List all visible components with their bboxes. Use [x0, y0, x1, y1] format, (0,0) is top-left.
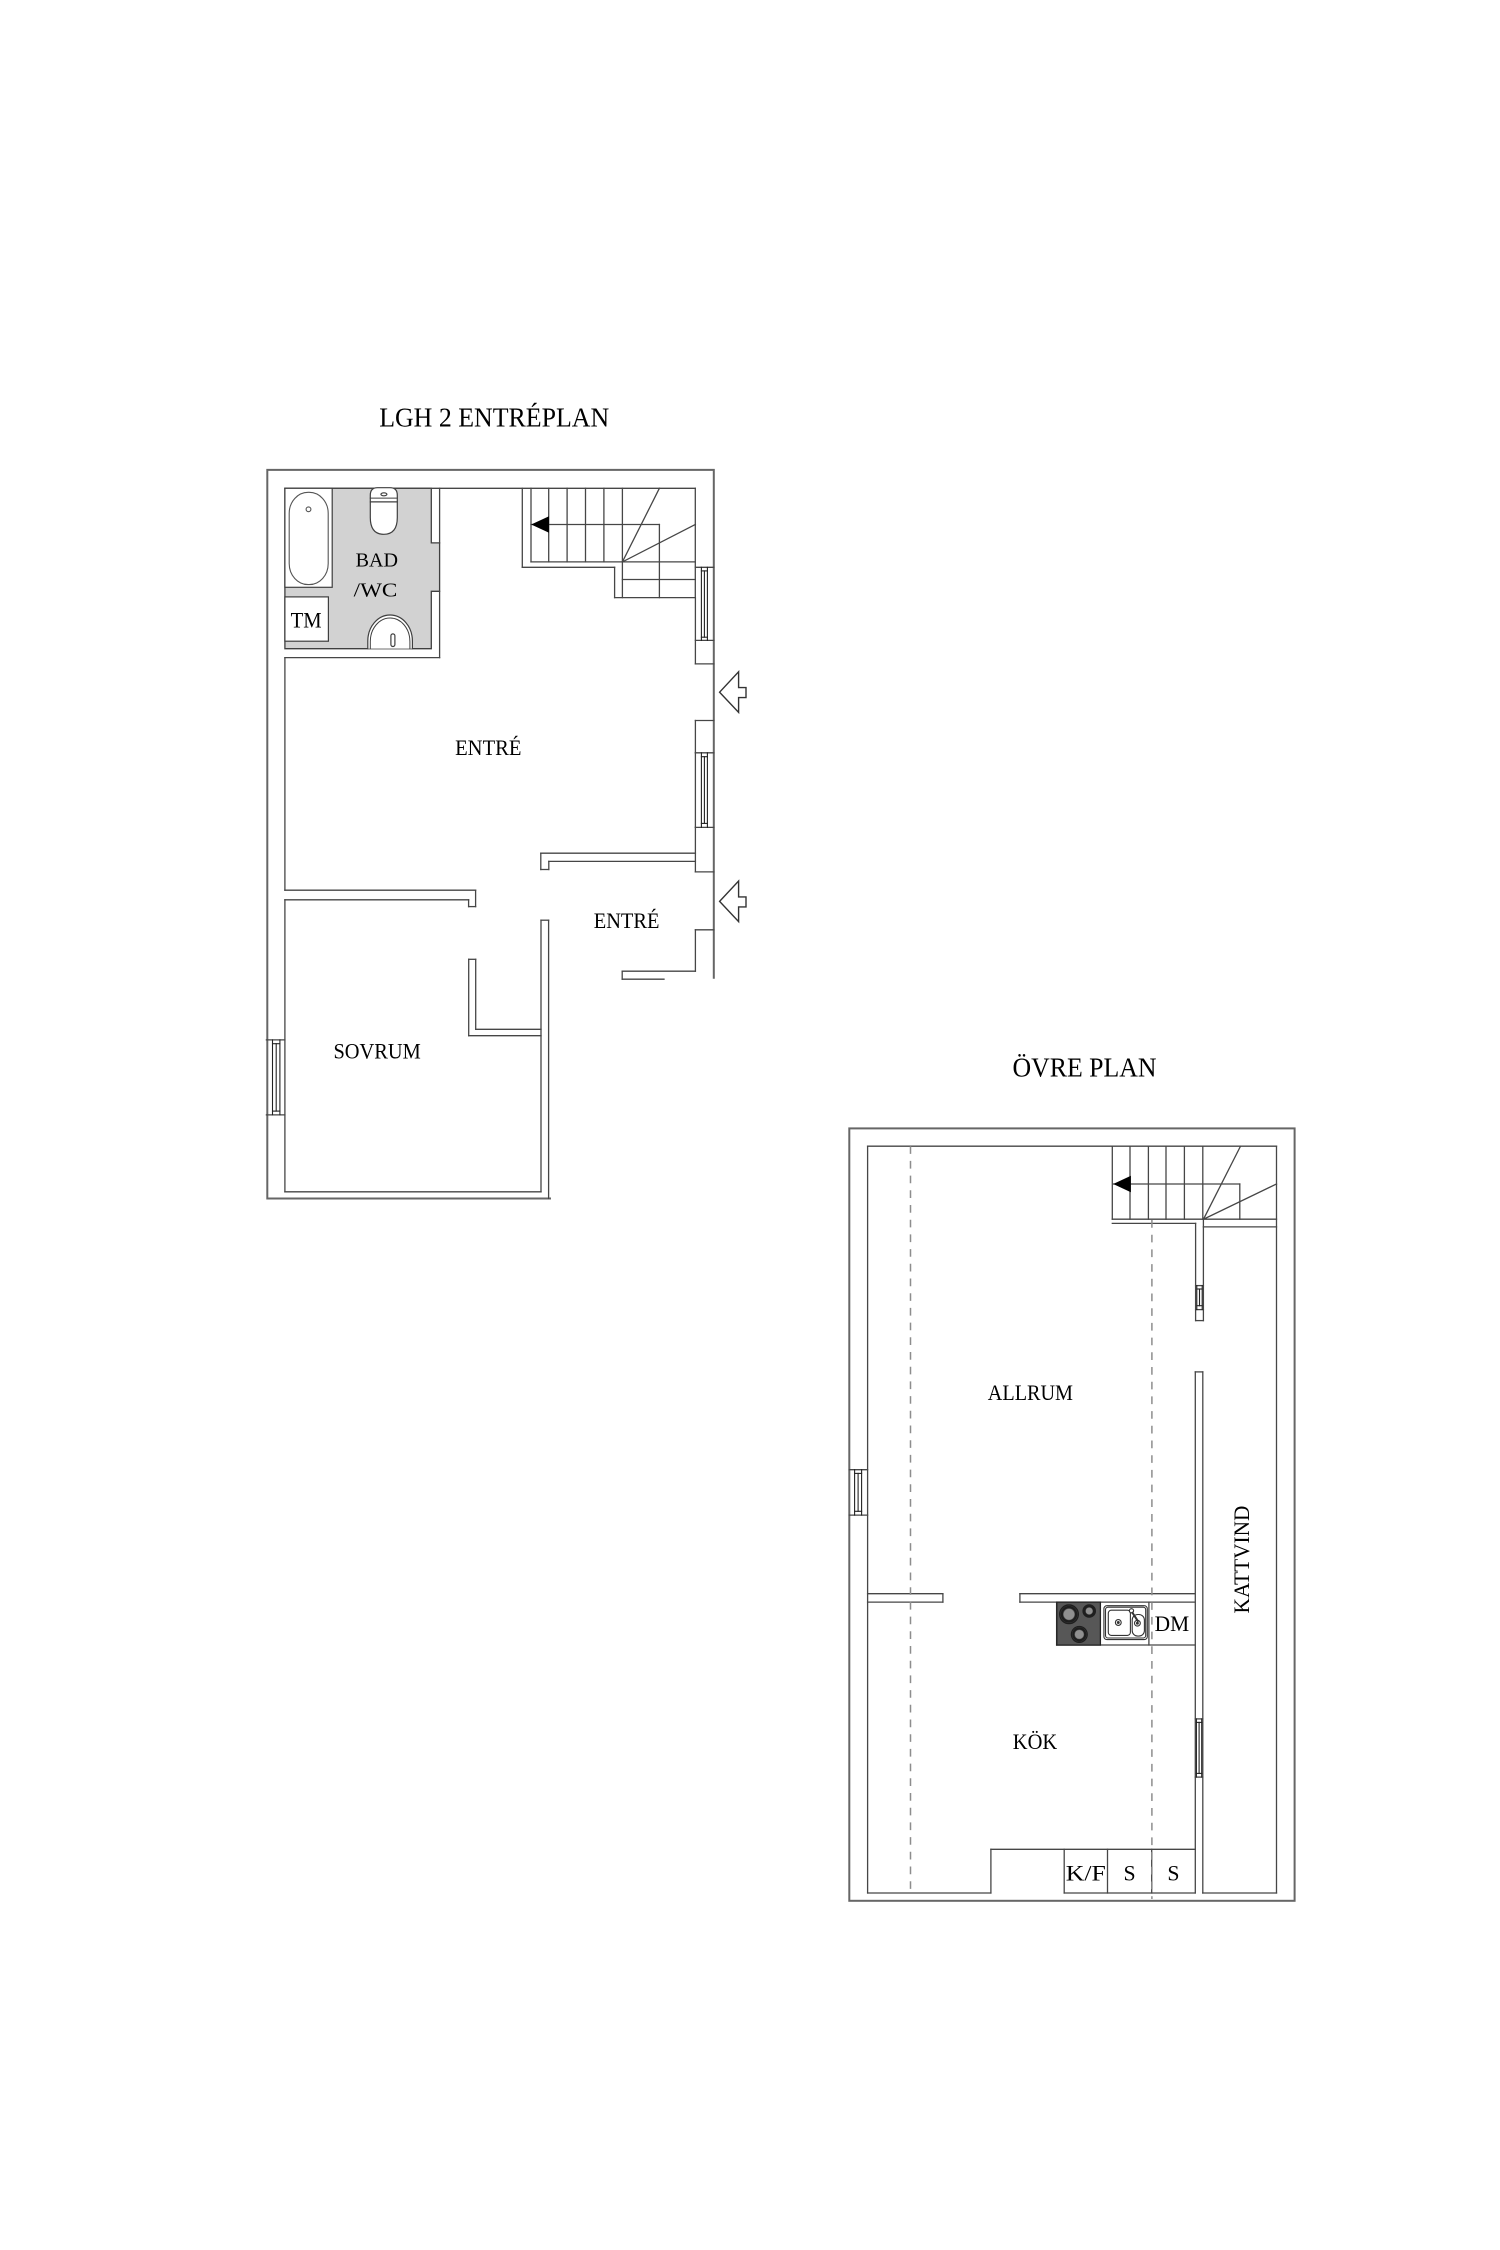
svg-text:S: S	[1124, 1862, 1136, 1886]
svg-text:S: S	[1167, 1862, 1179, 1886]
svg-text:/WC: /WC	[354, 581, 398, 602]
svg-text:KATTVIND: KATTVIND	[1230, 1506, 1254, 1614]
svg-text:SOVRUM: SOVRUM	[333, 1039, 420, 1063]
svg-text:DM: DM	[1155, 1612, 1190, 1636]
svg-text:TM: TM	[291, 608, 322, 632]
svg-text:BAD: BAD	[356, 550, 398, 571]
svg-text:K/F: K/F	[1066, 1862, 1106, 1886]
svg-text:ALLRUM: ALLRUM	[988, 1381, 1073, 1405]
svg-text:KÖK: KÖK	[1013, 1730, 1058, 1754]
svg-text:LGH 2 ENTRÉPLAN: LGH 2 ENTRÉPLAN	[379, 402, 609, 433]
svg-text:ENTRÉ: ENTRÉ	[594, 909, 660, 933]
svg-text:ENTRÉ: ENTRÉ	[455, 736, 521, 760]
svg-text:ÖVRE PLAN: ÖVRE PLAN	[1013, 1051, 1157, 1082]
